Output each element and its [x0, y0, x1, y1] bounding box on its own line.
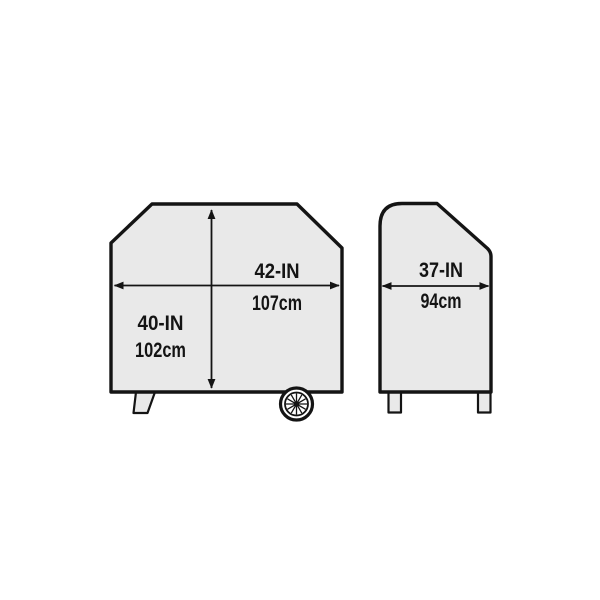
side-depth-label-cm: 94cm [421, 290, 462, 313]
front-cover-body [111, 204, 342, 392]
product-dimension-diagram: 42-IN 107cm 40-IN 102cm 37-IN 94cm [0, 0, 600, 600]
side-front-leg [389, 392, 402, 413]
front-left-leg [134, 392, 156, 413]
front-height-label-cm: 102cm [135, 339, 186, 362]
grill-cover-front-view: 42-IN 107cm 40-IN 102cm [111, 204, 342, 420]
wheel-hub [294, 401, 299, 406]
side-depth-label-in: 37-IN [419, 259, 463, 282]
front-width-label-cm: 107cm [252, 292, 302, 315]
grill-cover-side-view: 37-IN 94cm [380, 204, 491, 413]
wheel-icon [281, 388, 313, 420]
side-rear-leg [478, 392, 491, 413]
front-width-label-in: 42-IN [255, 260, 300, 283]
front-height-label-in: 40-IN [138, 312, 184, 335]
dimension-diagram-canvas: 42-IN 107cm 40-IN 102cm 37-IN 94cm [0, 0, 600, 600]
